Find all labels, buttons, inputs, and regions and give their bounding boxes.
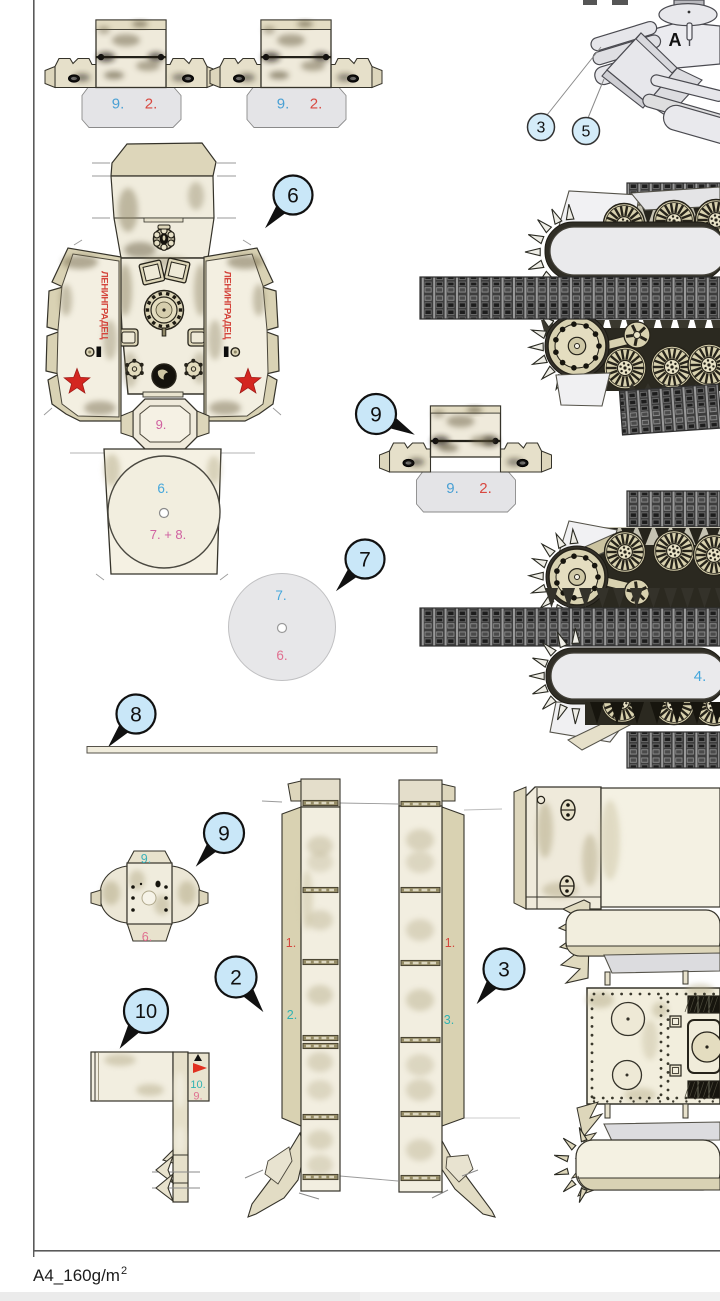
svg-text:3.: 3. [444,1013,454,1027]
svg-text:1.: 1. [286,936,296,950]
svg-text:7. + 8.: 7. + 8. [150,527,187,542]
svg-text:ЛЕНИНГРАДЕЦ: ЛЕНИНГРАДЕЦ [99,271,110,339]
svg-text:7.: 7. [275,588,286,603]
svg-text:4.: 4. [694,668,707,685]
svg-text:6.: 6. [157,481,168,496]
svg-text:3: 3 [498,959,510,982]
svg-text:6.: 6. [142,930,152,944]
svg-text:9.: 9. [277,96,290,113]
svg-text:6: 6 [287,185,299,208]
svg-text:9.: 9. [193,1091,202,1103]
svg-text:2: 2 [230,967,242,990]
svg-text:9: 9 [218,823,230,846]
svg-text:2.: 2. [145,96,158,113]
svg-text:10.: 10. [190,1079,205,1091]
svg-text:1.: 1. [445,936,455,950]
svg-text:7: 7 [359,549,371,572]
svg-text:ЛЕНИНГРАДЕЦ: ЛЕНИНГРАДЕЦ [222,271,233,339]
svg-text:2.: 2. [479,480,492,497]
svg-text:A4_160g/m: A4_160g/m [33,1266,120,1285]
svg-text:9.: 9. [112,96,125,113]
svg-text:2.: 2. [310,96,323,113]
svg-text:9.: 9. [446,480,459,497]
svg-text:10: 10 [135,1001,157,1023]
svg-text:6.: 6. [276,648,287,663]
svg-text:3: 3 [537,120,546,137]
svg-text:8: 8 [130,704,142,727]
svg-text:2.: 2. [287,1008,297,1022]
svg-text:A: A [669,30,682,50]
svg-text:9.: 9. [141,852,151,866]
svg-text:9.: 9. [156,417,167,432]
svg-text:9: 9 [370,404,382,427]
svg-text:5: 5 [582,124,591,141]
svg-text:2: 2 [121,1265,127,1277]
